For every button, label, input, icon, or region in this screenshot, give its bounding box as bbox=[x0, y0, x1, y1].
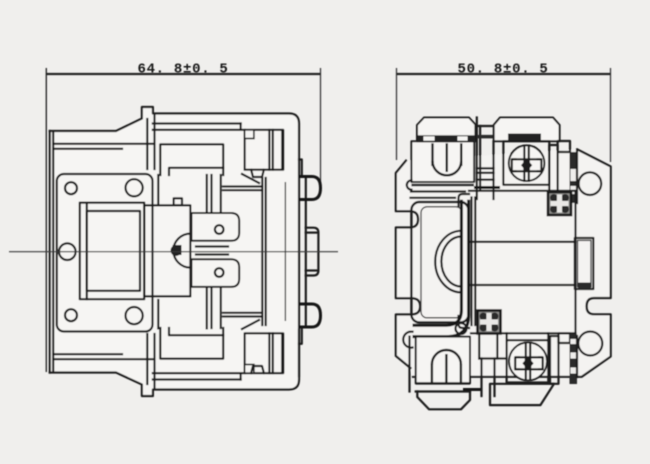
svg-text:50. 8±0. 5: 50. 8±0. 5 bbox=[457, 61, 548, 77]
svg-text:64. 8±0. 5: 64. 8±0. 5 bbox=[137, 61, 228, 77]
